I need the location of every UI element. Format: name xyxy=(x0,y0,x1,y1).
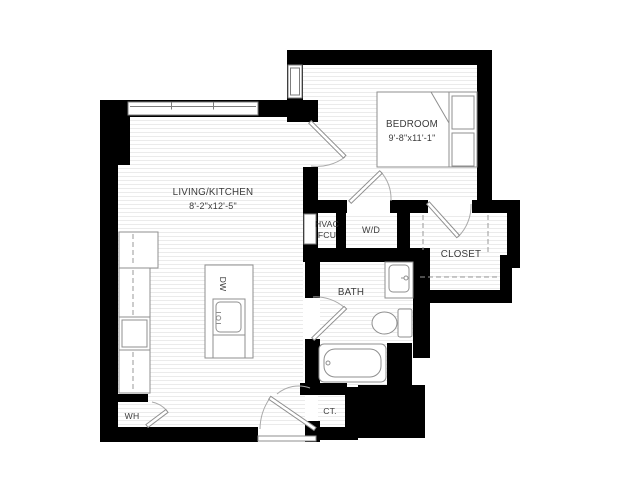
wall-coat-closet-top xyxy=(300,383,347,395)
living-window xyxy=(128,102,258,115)
wall-bedroom-top xyxy=(287,50,492,65)
water-heater-label: WH xyxy=(125,411,140,421)
wall-bedroom-left-step xyxy=(287,100,318,122)
toilet-tank xyxy=(398,309,412,337)
island-faucet xyxy=(216,316,220,320)
wall-bedroom-bottom-c xyxy=(472,200,520,213)
bathtub-basin xyxy=(324,349,381,377)
wall-corner-mass xyxy=(358,385,425,438)
bed-pillow xyxy=(452,133,474,166)
wall-living-left xyxy=(100,100,118,442)
dishwasher-label: DW xyxy=(218,277,228,292)
living-room-dimensions: 8'-2"x12'-5" xyxy=(189,201,237,211)
coat-closet-label: CT. xyxy=(323,406,337,416)
bedroom-window xyxy=(288,65,302,98)
wall-bath-left-lower xyxy=(305,339,320,385)
wall-bedroom-bottom-b xyxy=(390,200,428,213)
bedroom-label: BEDROOM xyxy=(386,119,438,130)
floor-entry-vestibule xyxy=(258,395,305,427)
wall-bath-top xyxy=(303,248,430,262)
bedroom-window-glass xyxy=(291,68,300,95)
living-window-frame xyxy=(128,102,258,115)
bath-vanity xyxy=(385,262,413,298)
bathtub xyxy=(319,344,386,382)
hvac-label-line1: HVAC xyxy=(315,219,339,229)
wall-bath-right xyxy=(413,248,430,358)
wall-bedroom-right xyxy=(477,50,492,213)
kitchen-island xyxy=(205,265,253,358)
floor-plan-drawing: LIVING/KITCHEN 8'-2"x12'-5" BEDROOM 9'-8… xyxy=(0,0,640,496)
laundry-label: W/D xyxy=(362,225,380,235)
bedroom-dimensions: 9'-8"x11'-1" xyxy=(388,133,435,143)
toilet-bowl xyxy=(372,312,397,334)
refrigerator xyxy=(119,232,158,268)
bathtub-drain xyxy=(326,361,330,365)
bed-pillow xyxy=(452,96,474,129)
wall-closet-bottom xyxy=(420,290,512,303)
wall-living-bottom xyxy=(100,427,258,442)
refrigerator-outline xyxy=(119,232,158,268)
kitchen-counter xyxy=(119,268,150,393)
island-lower-compartment xyxy=(213,335,245,358)
wall-closet-right-upper xyxy=(507,213,520,259)
wall-bedroom-bottom-a xyxy=(318,200,347,213)
bath-faucet xyxy=(404,276,408,280)
floor-plan: LIVING/KITCHEN 8'-2"x12'-5" BEDROOM 9'-8… xyxy=(0,0,640,496)
entry-threshold xyxy=(258,436,316,441)
wall-bath-left-upper xyxy=(305,262,320,298)
range-outline xyxy=(122,320,147,347)
wall-water-heater-stub xyxy=(115,394,148,402)
closet-label: CLOSET xyxy=(441,249,481,260)
wall-tub-right xyxy=(387,343,412,387)
bath-label: BATH xyxy=(338,287,364,298)
hvac-label-line2: FCU xyxy=(318,230,336,240)
wall-laundry-right xyxy=(397,213,410,252)
living-room-label: LIVING/KITCHEN xyxy=(173,187,254,198)
